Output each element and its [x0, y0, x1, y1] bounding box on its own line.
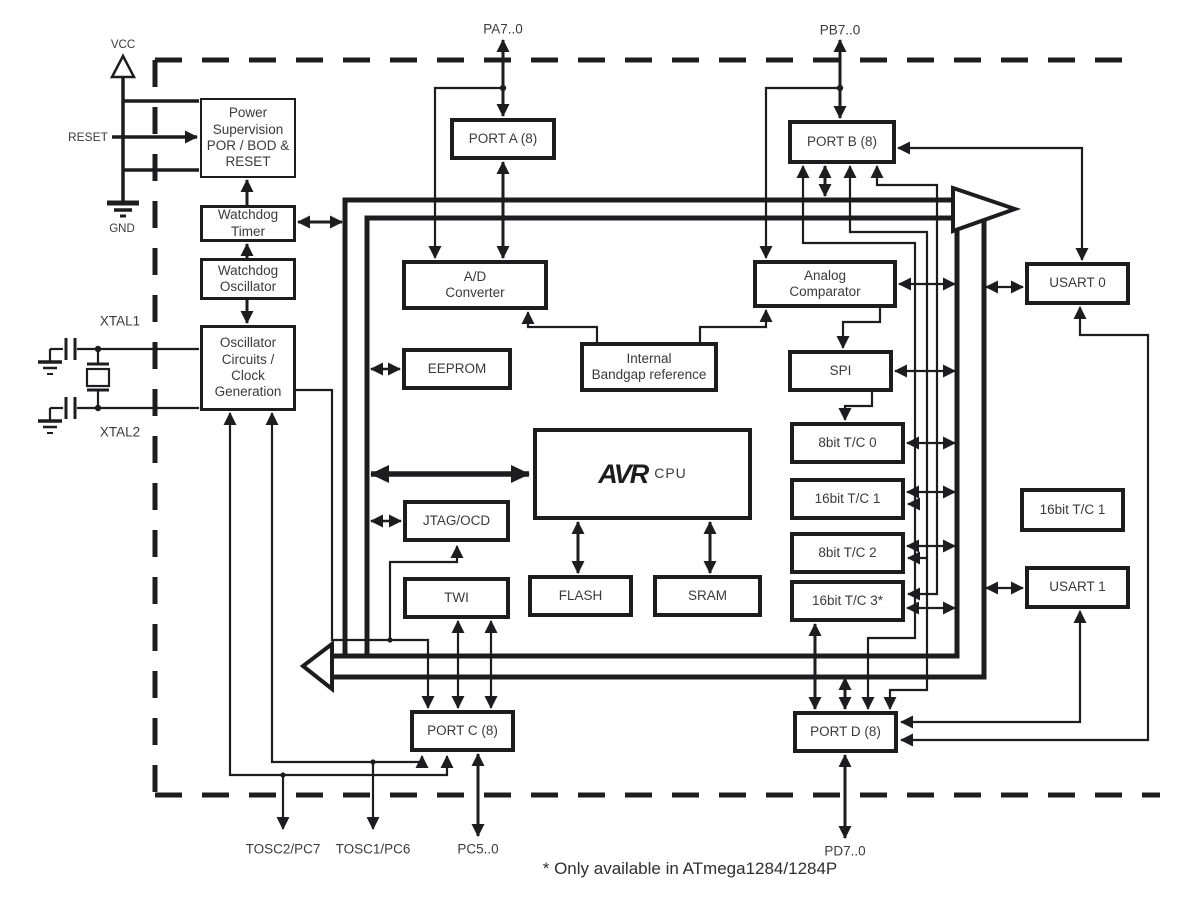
gnd-symbol-icon	[107, 203, 139, 216]
pin-label-pc: PC5..0	[457, 842, 498, 857]
block-power-supervision: Power Supervision POR / BOD & RESET	[200, 98, 296, 178]
block-port-c: PORT C (8)	[410, 710, 515, 752]
block-port-b: PORT B (8)	[788, 120, 896, 164]
pin-label-pd: PD7..0	[824, 844, 865, 859]
block-oscillator-circuits: Oscillator Circuits / Clock Generation	[200, 325, 296, 411]
pin-label-vcc: VCC	[111, 39, 135, 51]
block-usart0: USART 0	[1025, 262, 1130, 305]
pin-label-xtal1: XTAL1	[100, 314, 140, 329]
pin-label-xtal2: XTAL2	[100, 425, 140, 440]
block-ad-converter: A/D Converter	[402, 260, 548, 310]
crystal-circuit	[38, 338, 199, 433]
pin-label-reset: RESET	[68, 130, 108, 144]
block-port-d: PORT D (8)	[793, 711, 898, 753]
vcc-symbol-icon	[112, 56, 134, 77]
footnote: * Only available in ATmega1284/1284P	[543, 859, 838, 879]
block-usart1: USART 1	[1025, 566, 1130, 609]
block-internal-bandgap: Internal Bandgap reference	[580, 342, 718, 392]
bandgap-wiring	[528, 310, 766, 342]
block-8bit-tc0: 8bit T/C 0	[790, 422, 905, 464]
block-twi: TWI	[403, 577, 510, 619]
block-diagram: Power Supervision POR / BOD & RESET Watc…	[0, 0, 1200, 898]
pin-label-pa: PA7..0	[483, 22, 523, 37]
block-analog-comparator: Analog Comparator	[753, 260, 897, 308]
pin-label-tosc2: TOSC2/PC7	[246, 842, 321, 857]
avr-logo: AVR	[598, 458, 647, 491]
block-watchdog-oscillator: Watchdog Oscillator	[200, 258, 296, 300]
block-watchdog-timer: Watchdog Timer	[200, 205, 296, 242]
cpu-label: CPU	[654, 465, 687, 482]
block-16bit-tc3: 16bit T/C 3*	[790, 580, 905, 622]
pin-label-gnd: GND	[109, 223, 135, 235]
block-16bit-tc1: 16bit T/C 1	[790, 478, 905, 520]
block-eeprom: EEPROM	[402, 348, 512, 390]
block-flash: FLASH	[528, 575, 633, 617]
pin-label-tosc1: TOSC1/PC6	[336, 842, 411, 857]
block-8bit-tc2: 8bit T/C 2	[790, 532, 905, 574]
block-jtag-ocd: JTAG/OCD	[403, 500, 510, 542]
left-column-wiring	[247, 180, 342, 323]
block-16bit-tc1-right: 16bit T/C 1	[1020, 488, 1125, 532]
bus-arrow-left-icon	[303, 644, 332, 689]
pin-label-pb: PB7..0	[820, 23, 861, 38]
block-avr-cpu: AVR CPU	[533, 428, 752, 520]
block-sram: SRAM	[653, 575, 762, 617]
block-port-a: PORT A (8)	[450, 118, 556, 160]
block-spi: SPI	[788, 350, 893, 392]
